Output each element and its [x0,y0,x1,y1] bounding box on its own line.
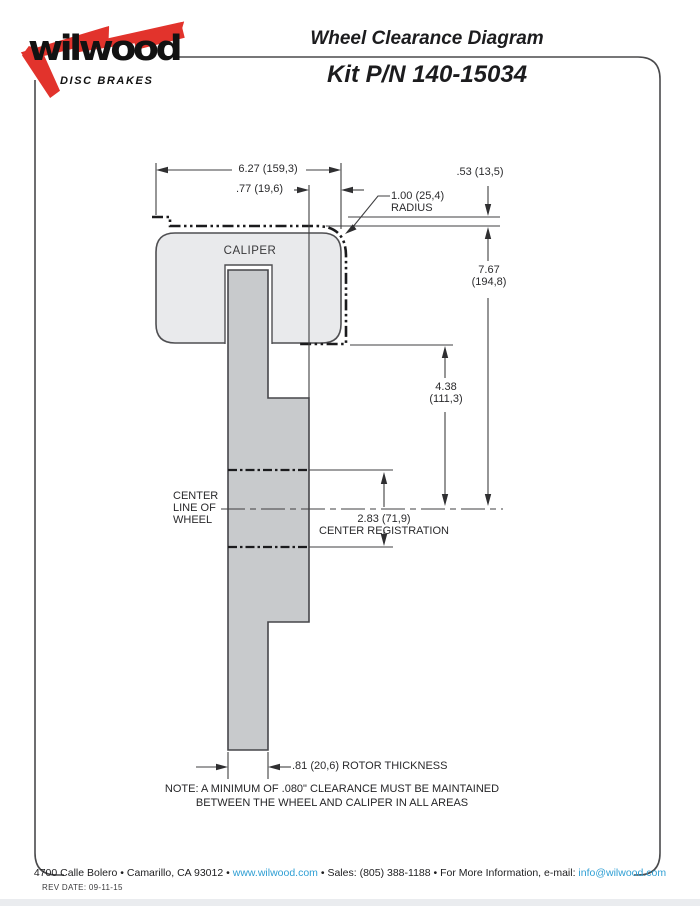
dim-lip-height-mm: (111,3) [429,393,462,405]
dim-caliper-overhang: .77 (19,6) [234,183,285,195]
clearance-note-line2: BETWEEN THE WHEEL AND CALIPER IN ALL ARE… [196,797,468,810]
dim-wheel-lip: .53 (13,5) [456,166,503,178]
dim-center-registration: 2.83 (71,9) [357,513,410,525]
footer-contact-line: 4700 Calle Bolero • Camarillo, CA 93012 … [0,867,700,879]
centerline-label-1: CENTER [173,490,218,502]
dim-caliper-height-in: 7.67 [472,264,507,276]
logo-tagline: DISC BRAKES [60,75,153,87]
center-registration-label: CENTER REGISTRATION [319,525,449,537]
centerline-label-3: WHEEL [173,514,218,526]
caliper-label: CALIPER [224,245,277,257]
centerline-label-2: LINE OF [173,502,218,514]
page-border [35,57,660,875]
rev-date: REV DATE: 09-11-15 [42,883,123,892]
dim-radius-value: 1.00 (25,4) [391,190,444,202]
footer-city: Camarillo, CA 93012 [127,867,223,879]
wilwood-logo: wilwood DISC BRAKES [16,20,192,106]
dim-rotor-thickness: .81 (20,6) ROTOR THICKNESS [292,760,447,772]
dim-caliper-width: 6.27 (159,3) [236,163,299,175]
footer-sales-phone: Sales: (805) 388-1188 [327,867,430,879]
footer-separator: • [226,867,230,879]
dim-caliper-height: 7.67 (194,8) [470,264,509,288]
footer-website-link[interactable]: www.wilwood.com [233,867,318,879]
dim-lip-height-in: 4.38 [429,381,462,393]
centerline-label: CENTER LINE OF WHEEL [173,490,218,526]
footer-email-link[interactable]: info@wilwood.com [578,867,666,879]
footer-separator: • [434,867,438,879]
footer-separator: • [321,867,325,879]
footer-address: 4700 Calle Bolero [34,867,117,879]
dim-caliper-height-mm: (194,8) [472,276,507,288]
footer-separator: • [120,867,124,879]
dim-radius-callout: 1.00 (25,4) RADIUS [391,190,444,214]
dim-lip-height: 4.38 (111,3) [427,381,464,405]
dim-radius-word: RADIUS [391,202,444,214]
page-title: Wheel Clearance Diagram [310,28,543,50]
document-page: wilwood DISC BRAKES Wheel Clearance Diag… [0,0,700,906]
clearance-note-line1: NOTE: A MINIMUM OF .080" CLEARANCE MUST … [165,783,499,796]
page-bottom-edge [0,899,700,906]
kit-part-number: Kit P/N 140-15034 [327,61,527,89]
logo-brand-text: wilwood [28,28,179,68]
footer-info-prefix: For More Information, e-mail: [440,867,575,879]
